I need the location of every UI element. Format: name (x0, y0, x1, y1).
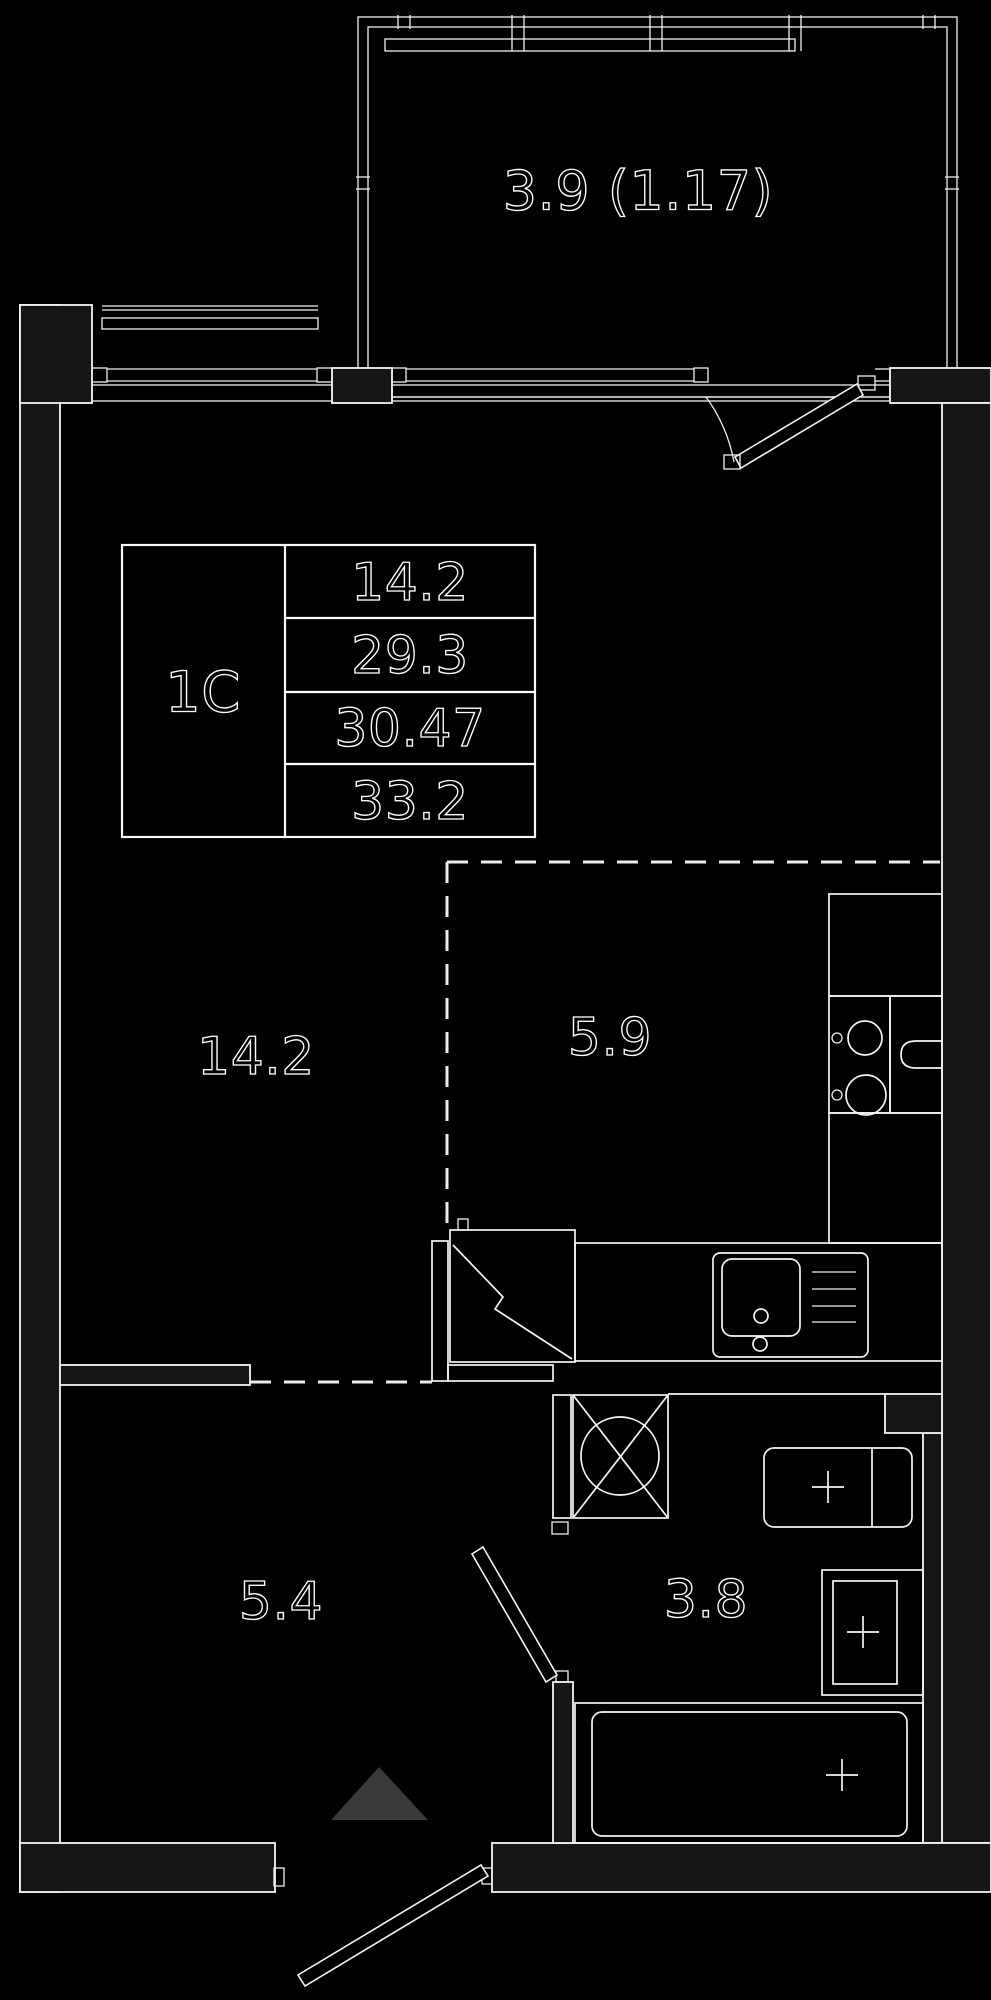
door-swing-icon (706, 397, 734, 462)
entry-arrow-icon (331, 1767, 428, 1820)
room-label-balcony: 3.9 (1.17) (503, 160, 773, 223)
washbasin-icon (764, 1448, 912, 1527)
walls (20, 305, 991, 1892)
entrance-door-leaf (298, 1865, 488, 1986)
toilet-icon (822, 1570, 923, 1695)
room-label-bathroom: 3.8 (664, 1570, 748, 1630)
floor-plan-svg: 1С 14.2 29.3 30.47 33.2 3.9 (1.17) 14.2 … (0, 0, 991, 2000)
spec-value-1: 14.2 (351, 553, 469, 613)
kitchen-sink-icon (713, 1253, 868, 1357)
living-room-window (92, 306, 332, 401)
kitchen-zone-boundary (250, 862, 940, 1382)
washing-machine-icon (573, 1395, 668, 1518)
room-label-hallway: 5.4 (239, 1572, 323, 1632)
room-label-living-room: 14.2 (197, 1027, 315, 1087)
floor-plan-page: 1С 14.2 29.3 30.47 33.2 3.9 (1.17) 14.2 … (0, 0, 991, 2000)
unit-type-label: 1С (165, 661, 241, 726)
bathroom-door-leaf (472, 1547, 557, 1682)
spec-value-4: 33.2 (351, 772, 469, 832)
vent-shaft-icon (450, 1219, 575, 1362)
room-label-kitchen: 5.9 (568, 1008, 652, 1068)
spec-value-2: 29.3 (351, 626, 469, 686)
stove-burners-icon (832, 1021, 942, 1115)
bathroom-partition (552, 1394, 885, 1682)
kitchen-counter (575, 894, 942, 1361)
spec-table: 1С 14.2 29.3 30.47 33.2 (122, 545, 535, 837)
entrance (274, 1767, 492, 1986)
bathtub-icon (575, 1703, 923, 1843)
balcony-window-door (392, 368, 890, 469)
spec-value-3: 30.47 (334, 699, 485, 759)
